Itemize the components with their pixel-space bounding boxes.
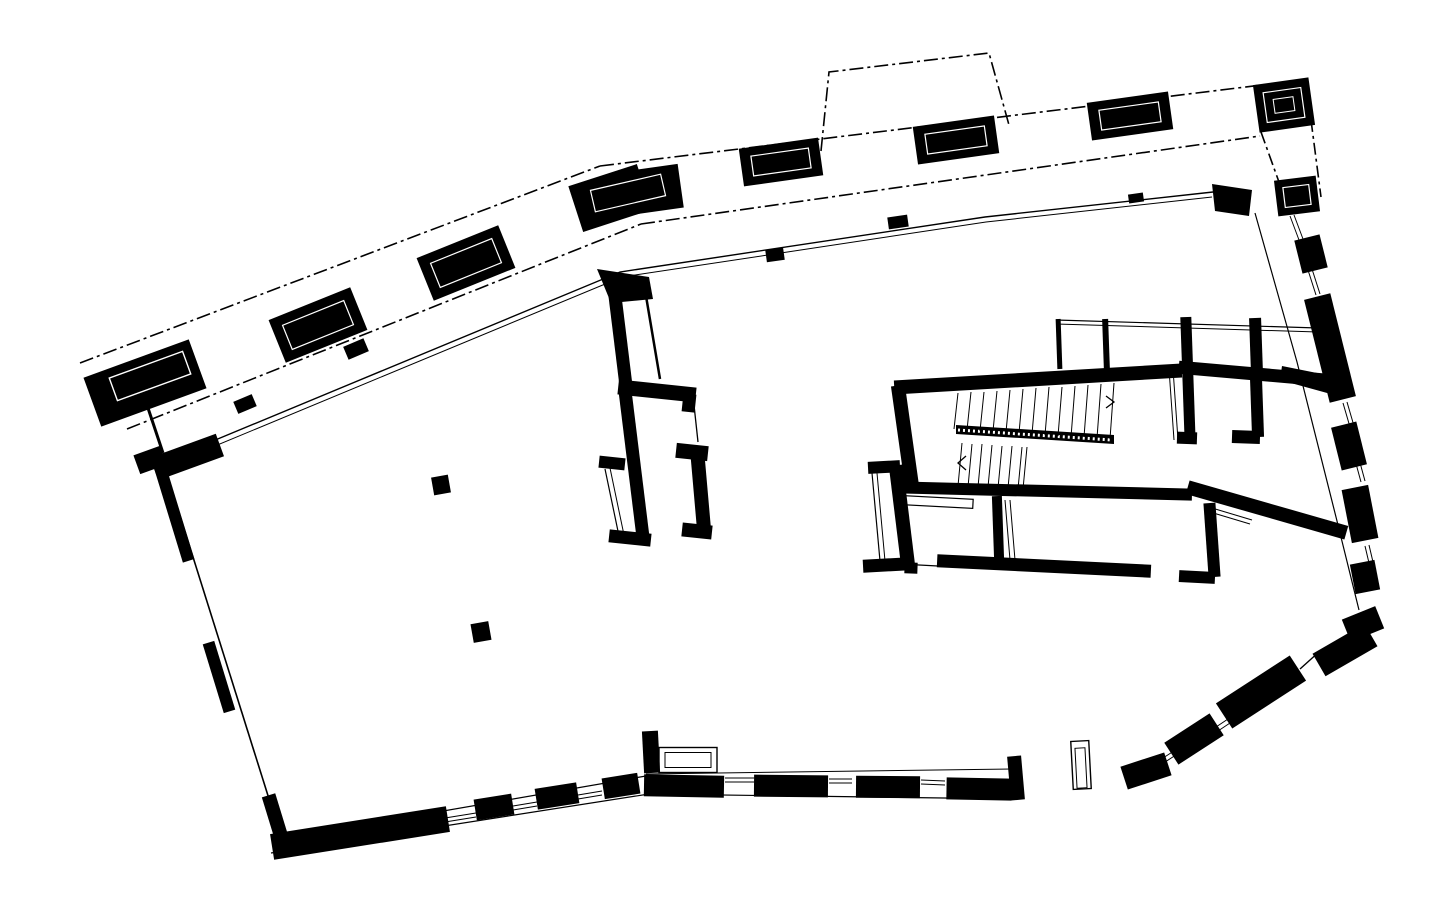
upper-partition-1: [1056, 319, 1063, 369]
stair-tread-u2: [967, 392, 971, 430]
bm-pier-1: [644, 774, 724, 797]
core-wall-b-upper: [1249, 318, 1263, 372]
arcade-pier-1: [83, 339, 206, 426]
stair-tread-u7: [1032, 388, 1036, 434]
core-wall-b-cap: [1232, 430, 1260, 444]
arcade-pier-4b: [616, 164, 684, 216]
stair-tread-l6: [1008, 446, 1012, 488]
core-wall-b-lower: [1250, 377, 1264, 437]
core-wall-a-cap: [1177, 432, 1197, 445]
entry-door-frame-outer: [659, 748, 717, 773]
rw-window-2b: [1312, 269, 1320, 294]
floor-plan-page: [0, 0, 1440, 916]
rw-pier-3: [1331, 422, 1367, 471]
stair-cut-band: [956, 425, 1114, 444]
storefront-stub-4: [887, 215, 908, 230]
rw-window-3b: [1347, 402, 1354, 426]
rw-pier-1: [1294, 234, 1327, 273]
stair-lower-edge: [1023, 447, 1027, 489]
right-wall-inner-line: [1255, 213, 1359, 610]
stair-tread-u6: [1019, 389, 1023, 433]
upper-partition-2: [1102, 319, 1110, 369]
stair-tread-l7: [1018, 447, 1022, 489]
core-top-band: [894, 363, 1182, 394]
arcade-inner-dash-left: [127, 224, 641, 429]
bl-window-2b: [513, 806, 537, 810]
rw-window-5b: [1369, 545, 1373, 562]
closet-glaze-a: [872, 473, 880, 561]
duct-attach: [597, 269, 653, 303]
rw-pier-4: [1342, 485, 1379, 543]
bm-window-3b: [921, 784, 945, 785]
storefront-stub-1: [233, 394, 256, 414]
rw-window-1a: [1290, 216, 1299, 240]
column-1: [431, 475, 451, 496]
stair-tread-u9: [1058, 387, 1062, 436]
stair-tread-u12: [1097, 384, 1101, 438]
rw-window-1b: [1294, 215, 1303, 239]
bl-window-3b: [578, 795, 602, 799]
stair-tread-u1: [954, 393, 958, 429]
stair-tread-u3: [980, 392, 984, 431]
bl-window-2a: [513, 802, 537, 806]
stair-tread-u11: [1084, 385, 1088, 437]
bl-window-3a: [578, 791, 602, 795]
rw-window-2a: [1308, 270, 1316, 295]
stair-tread-u10: [1071, 386, 1075, 437]
storefront-stub-5: [1128, 193, 1144, 204]
bm-pier-2: [754, 775, 828, 798]
duct-right-line: [646, 296, 660, 379]
arcade-pier-corner: [1253, 77, 1315, 132]
entry-door-stub: [642, 731, 660, 774]
column-2: [470, 621, 491, 643]
entry-door-frame-inner: [665, 753, 711, 768]
storefront-stub-3: [765, 248, 784, 262]
stair-tread-l2: [968, 444, 972, 487]
stair-tread-u5: [1006, 390, 1010, 432]
stair-tread-u13: [1110, 383, 1114, 439]
left-pier-link: [147, 405, 163, 453]
stair-tread-l4: [988, 445, 992, 487]
stair-tread-u4: [993, 391, 997, 431]
rw-window-5a: [1365, 546, 1369, 563]
rear-door-frame-inner: [1075, 748, 1087, 788]
room-counter-outline: [903, 496, 973, 509]
vestibule-door-line: [694, 405, 698, 442]
separator-glaze-b: [1010, 500, 1015, 560]
storefront-corner-block: [1212, 184, 1252, 216]
floor-plan-canvas: [0, 0, 1440, 916]
rw-corner-top: [1274, 176, 1320, 217]
room2-right-wall: [1203, 503, 1220, 578]
bl-pier-4: [602, 773, 641, 799]
room-separator-wall: [992, 496, 1004, 560]
bm-window-3a: [921, 780, 945, 781]
bm-pier-4: [946, 777, 1011, 800]
stair-tread-l5: [998, 446, 1002, 488]
stair-tread-l3: [978, 444, 982, 487]
separator-glaze-a: [1005, 500, 1010, 560]
rooms-bottom-band: [937, 554, 1151, 577]
rw-window-3a: [1343, 403, 1350, 427]
vestibule-glass-cap: [598, 456, 625, 471]
bl-pier-1: [270, 806, 450, 860]
bm-inner-line: [646, 769, 1012, 774]
core-wall-a: [1180, 317, 1195, 443]
stair-tread-u8: [1045, 387, 1049, 435]
bm-pier-3: [856, 776, 920, 799]
